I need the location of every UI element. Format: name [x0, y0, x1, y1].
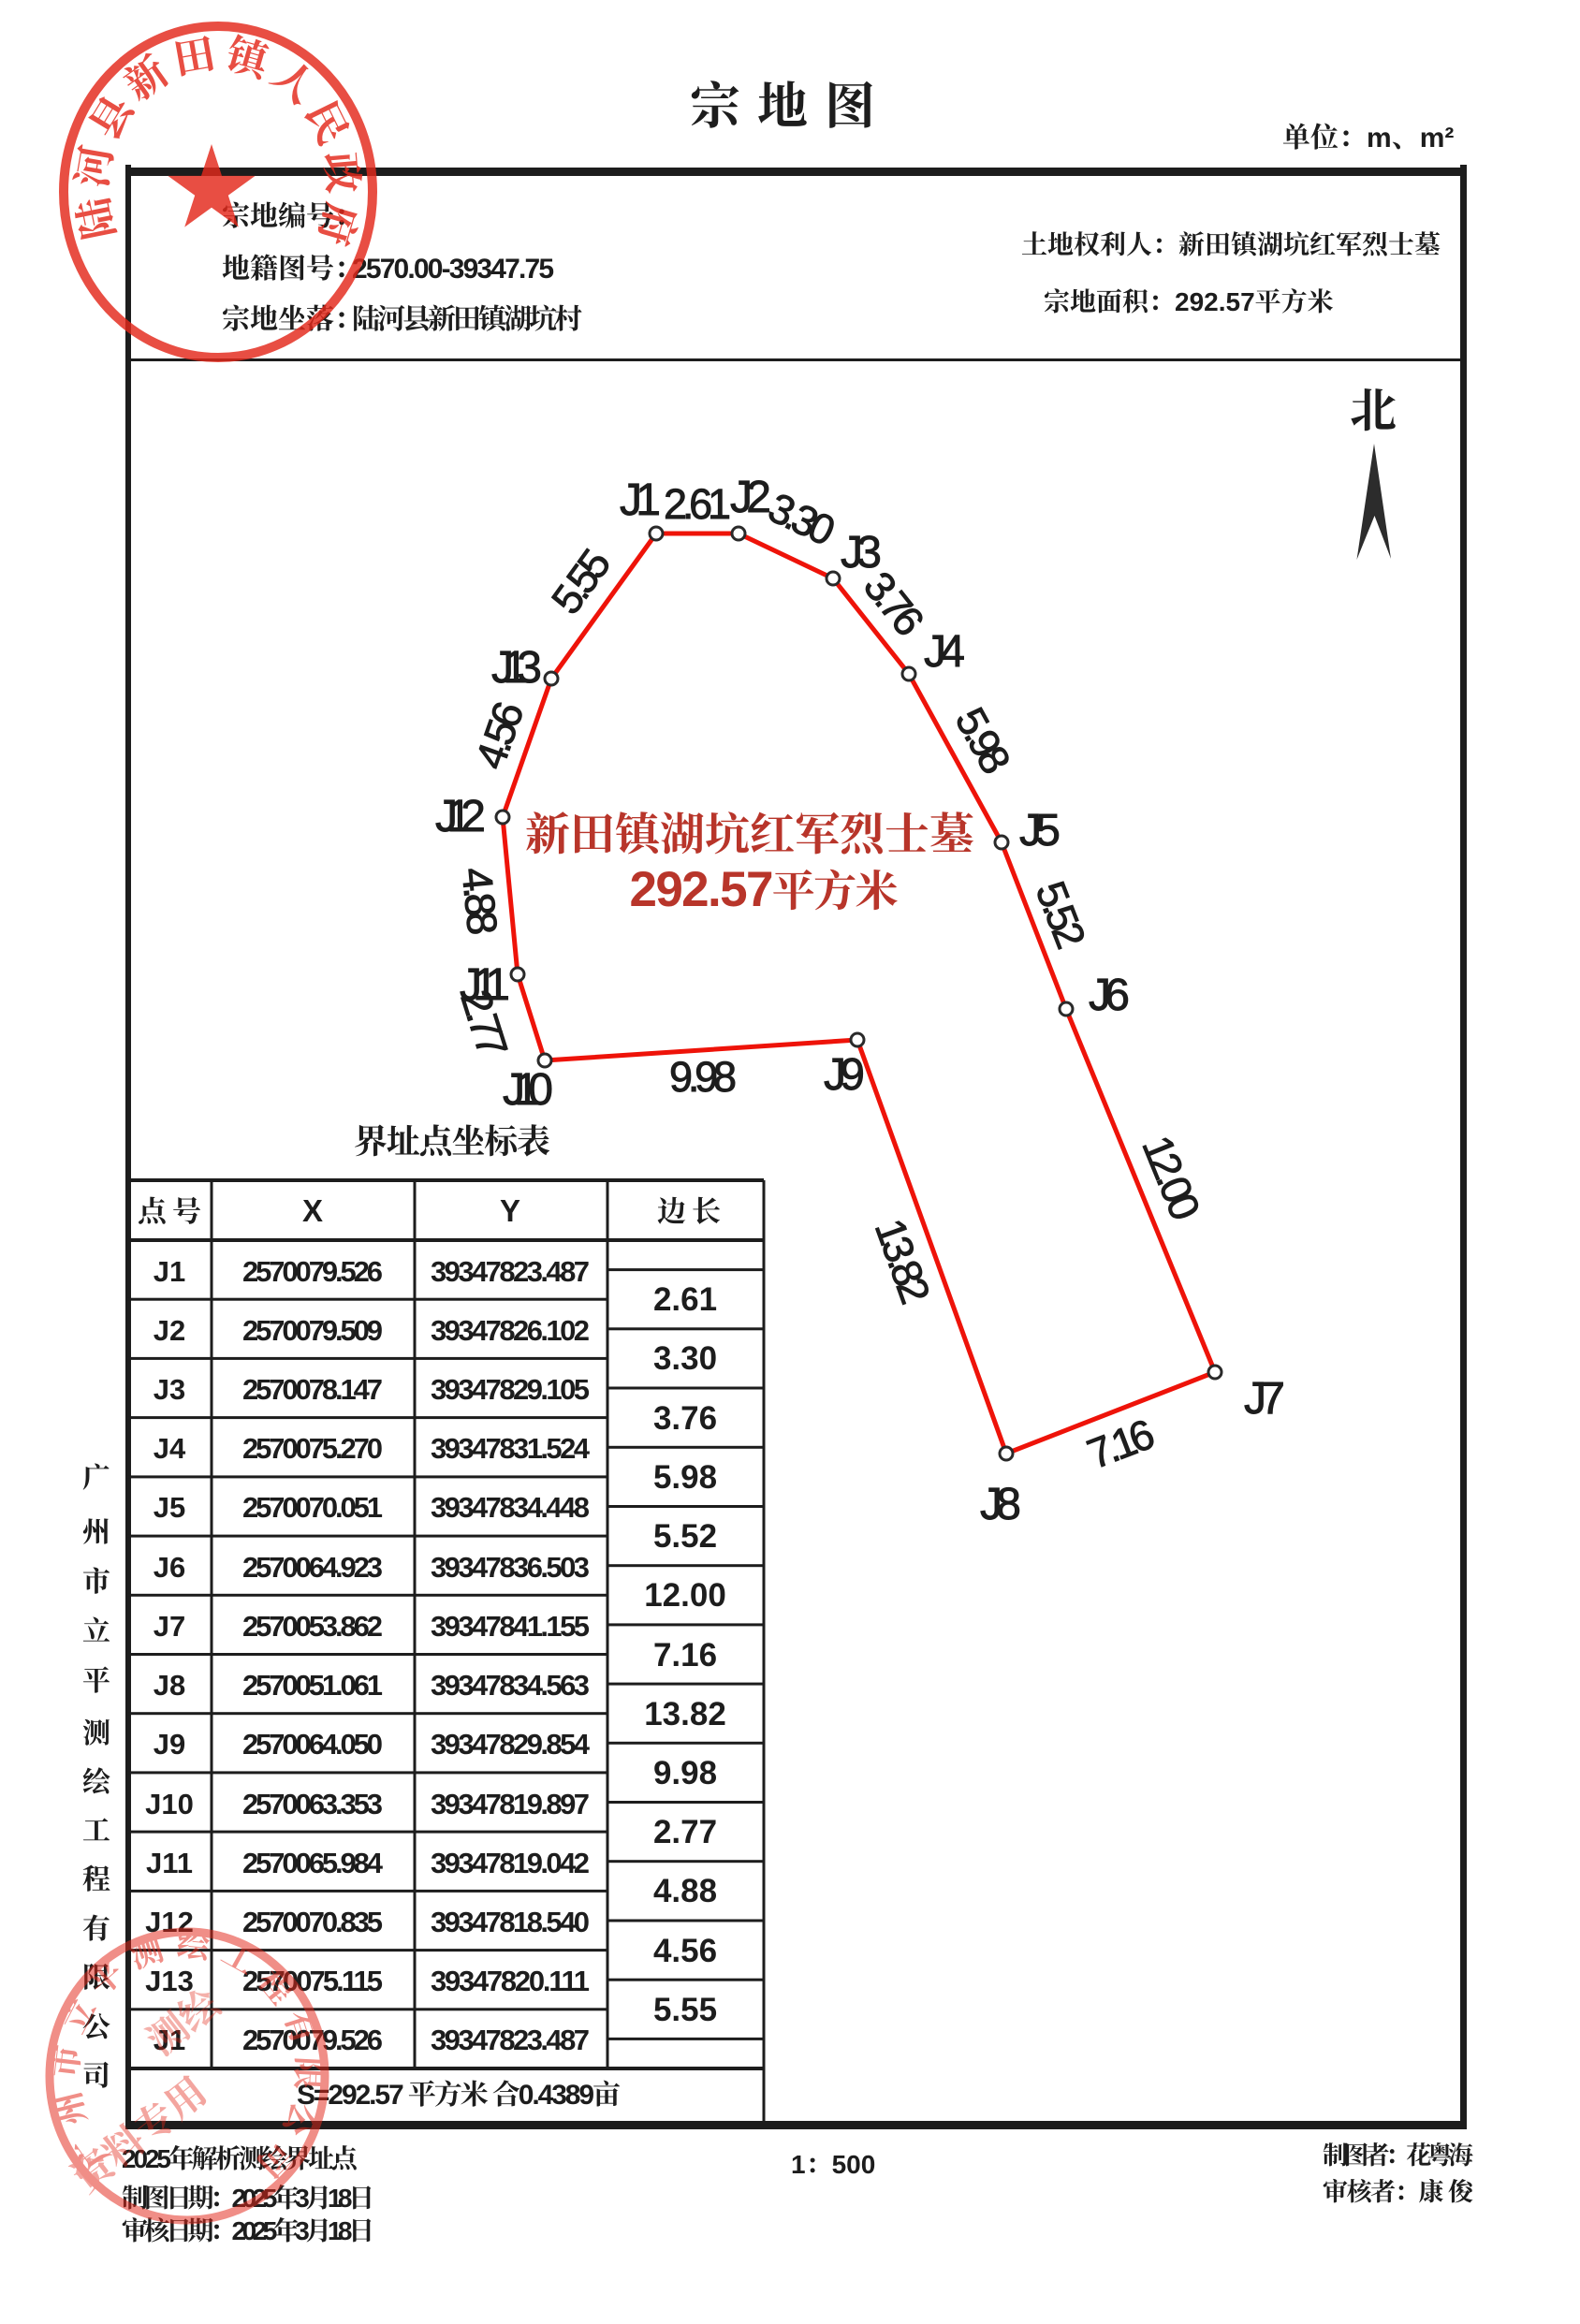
svg-text:2570079.526: 2570079.526 — [242, 1255, 383, 1288]
svg-text:2570078.147: 2570078.147 — [242, 1373, 383, 1406]
svg-text:4.88: 4.88 — [453, 866, 507, 937]
svg-text:J10: J10 — [145, 1788, 194, 1820]
svg-text:X: X — [302, 1193, 323, 1228]
svg-text:J6: J6 — [154, 1551, 185, 1584]
svg-text:292.57平方米: 292.57平方米 — [630, 857, 899, 919]
svg-text:J7: J7 — [1244, 1374, 1285, 1424]
svg-text:土地权利人：新田镇湖坑红军烈士墓: 土地权利人：新田镇湖坑红军烈士墓 — [1021, 225, 1441, 262]
svg-text:39347826.102: 39347826.102 — [431, 1314, 590, 1347]
svg-text:39347819.042: 39347819.042 — [431, 1847, 590, 1879]
svg-text:J7: J7 — [154, 1610, 185, 1643]
svg-text:Y: Y — [500, 1193, 520, 1228]
svg-text:2570051.061: 2570051.061 — [242, 1669, 383, 1702]
svg-text:2570070.051: 2570070.051 — [242, 1491, 383, 1524]
svg-text:4.56: 4.56 — [653, 1933, 717, 1969]
svg-text:J3: J3 — [154, 1373, 185, 1406]
svg-text:5.98: 5.98 — [653, 1459, 717, 1496]
svg-text:9.98: 9.98 — [669, 1053, 737, 1101]
svg-text:9.98: 9.98 — [653, 1755, 717, 1791]
svg-text:5.55: 5.55 — [653, 1992, 717, 2028]
svg-text:2570065.984: 2570065.984 — [242, 1847, 384, 1879]
svg-text:2.61: 2.61 — [653, 1281, 717, 1318]
svg-text:J1: J1 — [154, 1255, 185, 1288]
svg-text:J8: J8 — [980, 1480, 1021, 1529]
svg-text:13.82: 13.82 — [644, 1696, 726, 1732]
svg-text:5.52: 5.52 — [653, 1518, 717, 1555]
svg-text:J4: J4 — [154, 1432, 186, 1465]
svg-text:7.16: 7.16 — [653, 1637, 717, 1674]
svg-text:J12: J12 — [435, 792, 486, 841]
svg-text:2.77: 2.77 — [653, 1814, 717, 1850]
svg-text:审核者：康 俊: 审核者：康 俊 — [1323, 2171, 1473, 2208]
svg-text:39347829.854: 39347829.854 — [431, 1728, 591, 1761]
svg-text:39347836.503: 39347836.503 — [431, 1551, 590, 1584]
svg-text:3.30: 3.30 — [653, 1340, 717, 1377]
svg-text:点 号: 点 号 — [138, 1188, 201, 1230]
svg-text:2570079.509: 2570079.509 — [242, 1314, 383, 1347]
svg-text:J1: J1 — [620, 475, 661, 525]
svg-text:J6: J6 — [1089, 971, 1130, 1020]
svg-text:J13: J13 — [491, 643, 542, 693]
svg-text:J5: J5 — [154, 1491, 185, 1524]
svg-text:J2: J2 — [730, 473, 771, 522]
svg-text:界址点坐标表: 界址点坐标表 — [354, 1116, 550, 1163]
svg-text:宗地图: 宗地图 — [690, 66, 892, 139]
svg-text:J8: J8 — [154, 1669, 185, 1702]
svg-text:2570053.862: 2570053.862 — [242, 1610, 383, 1643]
svg-text:4.88: 4.88 — [653, 1873, 717, 1909]
svg-text:39347831.524: 39347831.524 — [431, 1432, 591, 1465]
svg-text:J11: J11 — [146, 1847, 193, 1879]
svg-text:J10: J10 — [503, 1065, 553, 1115]
svg-text:39347819.897: 39347819.897 — [431, 1788, 590, 1820]
svg-text:北: 北 — [1350, 373, 1397, 441]
svg-text:2570063.353: 2570063.353 — [242, 1788, 383, 1820]
svg-text:39347834.563: 39347834.563 — [431, 1669, 590, 1702]
svg-text:J5: J5 — [1019, 806, 1061, 855]
svg-text:J2: J2 — [154, 1314, 185, 1347]
svg-text:边 长: 边 长 — [657, 1188, 721, 1230]
svg-text:39347829.105: 39347829.105 — [431, 1373, 590, 1406]
svg-text:制图者：花粤海: 制图者：花粤海 — [1323, 2135, 1473, 2171]
svg-text:39347841.155: 39347841.155 — [431, 1610, 590, 1643]
svg-text:2570064.923: 2570064.923 — [242, 1551, 383, 1584]
svg-text:3.76: 3.76 — [653, 1400, 717, 1437]
svg-text:J3: J3 — [841, 528, 882, 577]
svg-text:宗地坐落：陆河县新田镇湖坑村: 宗地坐落：陆河县新田镇湖坑村 — [222, 296, 582, 337]
svg-text:39347818.540: 39347818.540 — [431, 1906, 590, 1938]
svg-text:2570070.835: 2570070.835 — [242, 1906, 383, 1938]
svg-text:39347823.487: 39347823.487 — [431, 1255, 590, 1288]
svg-text:39347820.111: 39347820.111 — [431, 1965, 590, 1997]
svg-text:J9: J9 — [824, 1050, 865, 1100]
svg-text:宗地面积：292.57平方米: 宗地面积：292.57平方米 — [1044, 282, 1334, 319]
svg-text:12.00: 12.00 — [644, 1577, 726, 1614]
svg-text:J4: J4 — [924, 627, 965, 677]
svg-text:2570064.050: 2570064.050 — [242, 1728, 383, 1761]
svg-text:2.61: 2.61 — [664, 480, 731, 528]
svg-text:1：500: 1：500 — [791, 2144, 875, 2182]
svg-text:J9: J9 — [154, 1728, 185, 1761]
svg-text:新田镇湖坑红军烈士墓: 新田镇湖坑红军烈士墓 — [525, 798, 974, 863]
svg-text:2570075.270: 2570075.270 — [242, 1432, 383, 1465]
svg-text:39347834.448: 39347834.448 — [431, 1491, 590, 1524]
svg-text:39347823.487: 39347823.487 — [431, 2024, 590, 2056]
